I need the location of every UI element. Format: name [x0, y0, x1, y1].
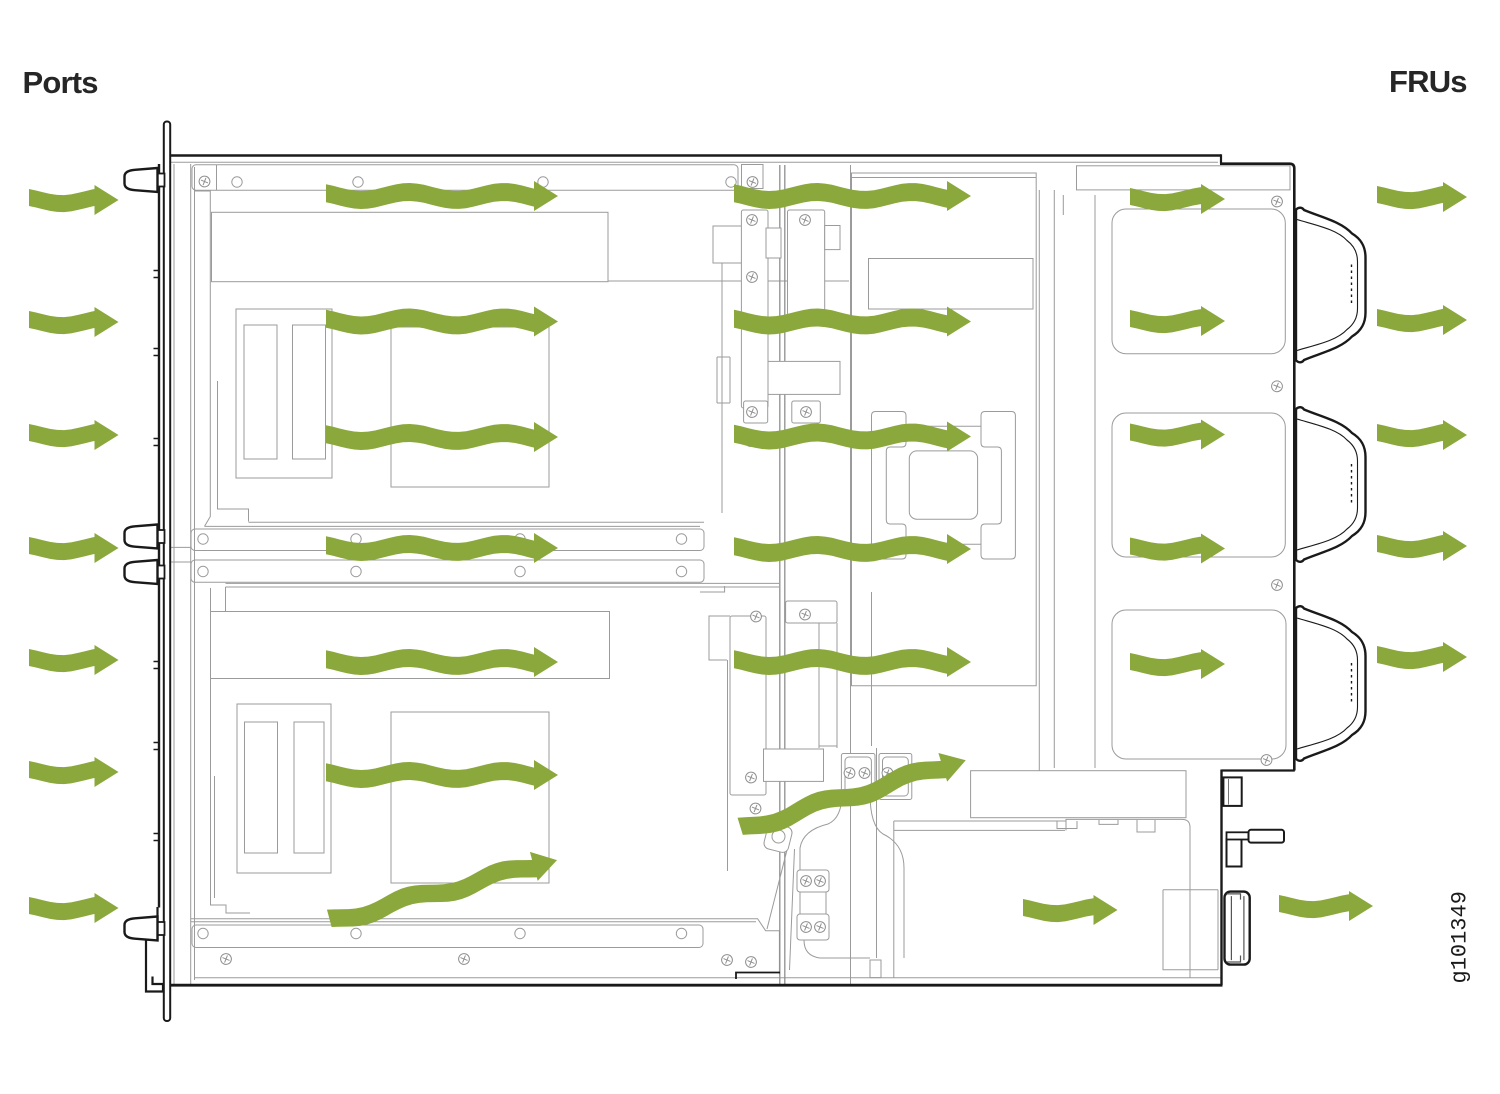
svg-text:g101349: g101349: [1448, 891, 1473, 983]
svg-text:Ports: Ports: [23, 65, 98, 100]
svg-text:FRUs: FRUs: [1389, 64, 1467, 99]
